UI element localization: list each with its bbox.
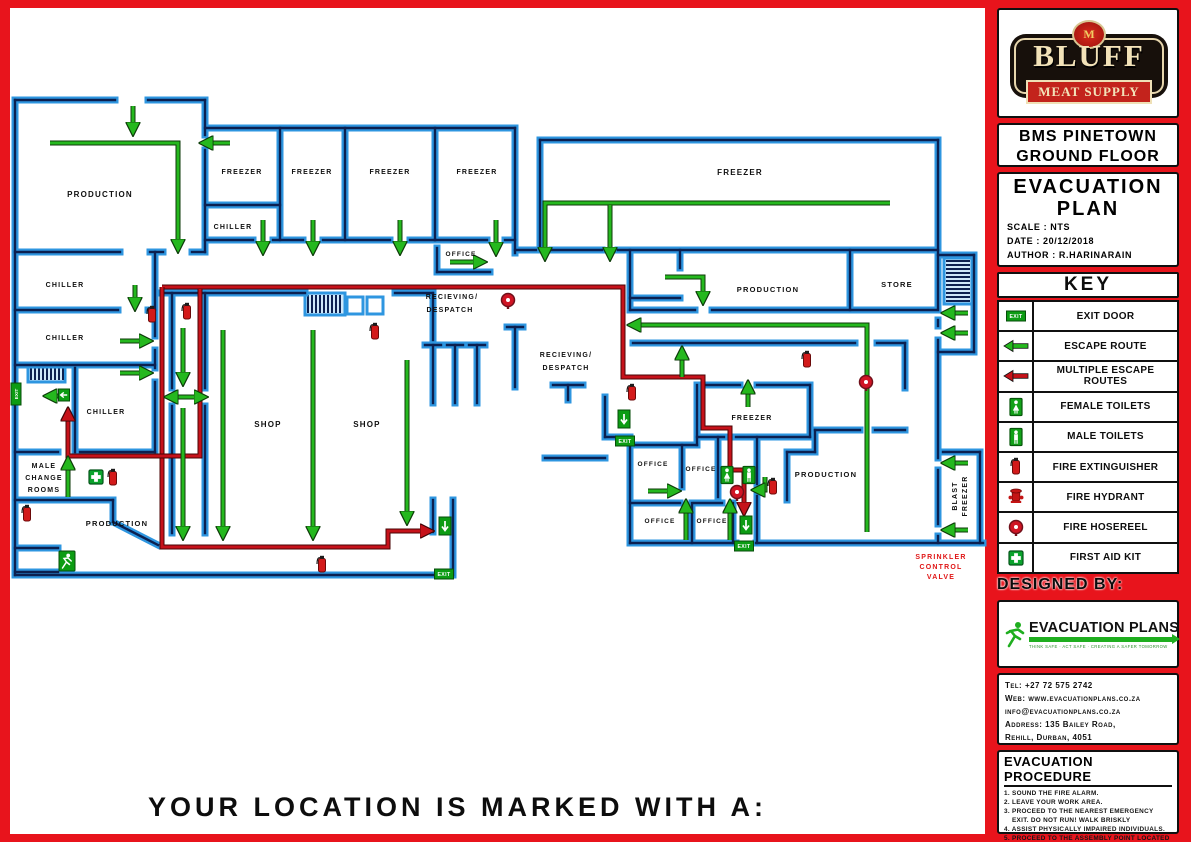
first-aid-kit-icon <box>999 544 1034 572</box>
room-label: ROOMS <box>28 487 60 494</box>
room-label: CHILLER <box>87 409 126 416</box>
bluff-logo: M BLUFF MEAT SUPPLY <box>1010 34 1168 98</box>
key-box: KEY EXITEXIT DOORESCAPE ROUTEMULTIPLE ES… <box>997 272 1179 570</box>
room-label: FREEZER <box>369 169 410 176</box>
running-man-exit-icon <box>59 551 75 571</box>
room-label: DESPATCH <box>542 365 589 372</box>
designer-name: EVACUATION PLANS <box>1029 620 1173 636</box>
site-line1: BMS PINETOWN <box>999 127 1177 147</box>
contact-line: Web: www.evacuationplans.co.za <box>1005 692 1171 705</box>
contact-box: Tel: +27 72 575 2742Web: www.evacuationp… <box>997 673 1179 745</box>
room-label: OFFICE <box>685 466 716 473</box>
key-row-fire-hosereel: FIRE HOSEREEL <box>999 513 1177 543</box>
procedure-step: 5. PROCEED TO THE ASSEMBLY POINT LOCATED… <box>1004 834 1172 842</box>
key-row-first-aid-kit: FIRST AID KIT <box>999 544 1177 572</box>
room-label: PRODUCTION <box>67 190 133 199</box>
room-label: SHOP <box>353 420 380 429</box>
room-label: OFFICE <box>637 461 668 468</box>
exit-down-arrow-icon <box>618 410 630 428</box>
procedure-steps: 1. SOUND THE FIRE ALARM.2. LEAVE YOUR WO… <box>1004 789 1172 842</box>
dock-box <box>347 297 363 314</box>
contact-line: Address: 135 Bailey Road, <box>1005 718 1171 731</box>
room-label: CHILLER <box>46 282 85 289</box>
fire-extinguisher-icon <box>999 453 1034 481</box>
key-row-multiple-escape-routes: MULTIPLE ESCAPE ROUTES <box>999 362 1177 392</box>
procedure-box: EVACUATION PROCEDURE 1. SOUND THE FIRE A… <box>997 750 1179 834</box>
procedure-step: 4. ASSIST PHYSICALLY IMPAIRED INDIVIDUAL… <box>1004 825 1172 834</box>
location-marker-caption: YOUR LOCATION IS MARKED WITH A: <box>148 792 767 823</box>
room-label: STORE <box>881 280 913 289</box>
key-title: KEY <box>997 272 1179 298</box>
svg-text:EXIT: EXIT <box>618 439 632 445</box>
room-label: MALE <box>32 463 57 470</box>
plan-title-line2: PLAN <box>1007 198 1169 220</box>
fire-extinguisher-icon <box>108 469 117 485</box>
room-label: OFFICE <box>696 518 727 525</box>
fire-hosereel-icon <box>860 376 873 392</box>
key-label: FEMALE TOILETS <box>1034 401 1177 412</box>
key-label: FIRE EXTINGUISHER <box>1034 462 1177 473</box>
plan-date: DATE : 20/12/2018 <box>1007 234 1169 248</box>
room-label: PRODUCTION <box>86 519 148 528</box>
exit-sign-icon: EXIT <box>435 569 454 579</box>
grille-stairs <box>944 258 972 304</box>
key-table: EXITEXIT DOORESCAPE ROUTEMULTIPLE ESCAPE… <box>997 300 1179 574</box>
first-aid-kit-icon <box>89 470 103 484</box>
fire-extinguisher-icon <box>768 478 777 494</box>
room-label: FREEZER <box>717 168 763 177</box>
room-label: FREEZER <box>731 415 772 422</box>
room-label: OFFICE <box>445 251 476 258</box>
room-label: FREEZER <box>291 169 332 176</box>
exit-down-arrow-icon <box>740 516 752 534</box>
designed-by-heading: DESIGNED BY: <box>997 576 1179 594</box>
male-toilets-icon <box>743 467 755 484</box>
key-label: FIRE HOSEREEL <box>1034 522 1177 533</box>
exit-sign-icon: EXIT <box>616 436 635 446</box>
room-label: SHOP <box>254 420 281 429</box>
plan-title-line1: EVACUATION <box>1007 176 1169 198</box>
female-toilets-icon <box>721 467 733 484</box>
svg-text:EXIT: EXIT <box>14 389 20 400</box>
key-label: ESCAPE ROUTE <box>1034 341 1177 352</box>
fire-extinguisher-icon <box>147 306 156 322</box>
exit-sign-icon: EXIT <box>735 541 754 551</box>
evacuation-plans-runner-icon <box>1003 619 1029 649</box>
contact-line: Tel: +27 72 575 2742 <box>1005 679 1171 692</box>
fire-hydrant-icon <box>999 483 1034 511</box>
contact-line: Rehill, Durban, 4051 <box>1005 731 1171 744</box>
key-row-escape-route: ESCAPE ROUTE <box>999 332 1177 362</box>
room-label: CHILLER <box>214 224 253 231</box>
bluff-sub-text: MEAT SUPPLY <box>1026 80 1152 104</box>
plan-scale: SCALE : NTS <box>1007 220 1169 234</box>
room-label: BLAST <box>952 481 959 510</box>
fire-hosereel-icon <box>502 294 515 310</box>
key-label: EXIT DOOR <box>1034 311 1177 322</box>
female-toilets-icon <box>999 393 1034 421</box>
fire-extinguisher-icon <box>317 556 326 572</box>
exit-sign-icon: EXIT <box>999 302 1034 330</box>
room-label: CHILLER <box>46 335 85 342</box>
contact-line: info@evacuationplans.co.za <box>1005 705 1171 718</box>
room-label: RECIEVING/ <box>426 294 478 301</box>
room-label: FREEZER <box>221 169 262 176</box>
room-label: FREEZER <box>456 169 497 176</box>
exit-vertical-sign-icon: EXIT <box>11 383 21 405</box>
key-row-exit-door: EXITEXIT DOOR <box>999 302 1177 332</box>
room-label: CONTROL <box>919 564 962 571</box>
svg-text:EXIT: EXIT <box>437 572 451 578</box>
key-label: FIRE HYDRANT <box>1034 492 1177 503</box>
designer-arrow <box>1029 637 1173 642</box>
key-label: MULTIPLE ESCAPE ROUTES <box>1034 365 1177 387</box>
fire-extinguisher-icon <box>802 351 811 367</box>
site-line2: GROUND FLOOR <box>999 147 1177 167</box>
room-label: DESPATCH <box>426 307 473 314</box>
bluff-logo-box: M BLUFF MEAT SUPPLY <box>997 8 1179 118</box>
grille-stairs <box>305 293 345 315</box>
escape-route-arrow-icon <box>999 332 1034 360</box>
male-toilets-icon <box>999 423 1034 451</box>
plan-author: AUTHOR : R.HARINARAIN <box>1007 248 1169 262</box>
room-label: SPRINKLER <box>915 554 966 561</box>
room-label: OFFICE <box>644 518 675 525</box>
evacuation-plan-page: EXITEXITEXITEXITPRODUCTIONFREEZERCHILLER… <box>0 0 1191 842</box>
fire-extinguisher-icon <box>182 303 191 319</box>
exit-small-sign-icon <box>59 389 70 401</box>
key-row-fire-extinguisher: FIRE EXTINGUISHER <box>999 453 1177 483</box>
key-row-fire-hydrant: FIRE HYDRANT <box>999 483 1177 513</box>
key-row-male-toilets: MALE TOILETS <box>999 423 1177 453</box>
key-label: MALE TOILETS <box>1034 431 1177 442</box>
fire-hosereel-icon <box>999 513 1034 541</box>
key-label: FIRST AID KIT <box>1034 552 1177 563</box>
exit-down-arrow-icon <box>439 517 451 535</box>
procedure-step: 2. LEAVE YOUR WORK AREA. <box>1004 798 1172 807</box>
room-label: CHANGE <box>25 475 63 482</box>
room-label: PRODUCTION <box>795 470 857 479</box>
fire-extinguisher-icon <box>22 505 31 521</box>
site-title-box: BMS PINETOWN GROUND FLOOR <box>997 123 1179 167</box>
plan-title-box: EVACUATION PLAN SCALE : NTS DATE : 20/12… <box>997 172 1179 267</box>
designer-logo-box: EVACUATION PLANS THINK SAFE · ACT SAFE ·… <box>997 600 1179 668</box>
svg-text:EXIT: EXIT <box>737 544 751 550</box>
svg-text:EXIT: EXIT <box>1009 314 1023 320</box>
procedure-step: 1. SOUND THE FIRE ALARM. <box>1004 789 1172 798</box>
room-label: FREEZER <box>962 475 969 516</box>
room-label: PRODUCTION <box>737 285 799 294</box>
designer-tagline: THINK SAFE · ACT SAFE · CREATING A SAFER… <box>1029 644 1173 649</box>
fire-extinguisher-icon <box>370 323 379 339</box>
dock-box <box>367 297 383 314</box>
room-label: RECIEVING/ <box>540 352 592 359</box>
procedure-step: 3. PROCEED TO THE NEAREST EMERGENCY EXIT… <box>1004 807 1172 825</box>
room-label: VALVE <box>927 574 955 581</box>
multiple-escape-route-arrow-icon <box>999 362 1034 390</box>
procedure-title: EVACUATION PROCEDURE <box>1004 754 1172 787</box>
key-row-female-toilets: FEMALE TOILETS <box>999 393 1177 423</box>
bluff-brand-text: BLUFF <box>1010 38 1168 74</box>
fire-extinguisher-icon <box>627 384 636 400</box>
